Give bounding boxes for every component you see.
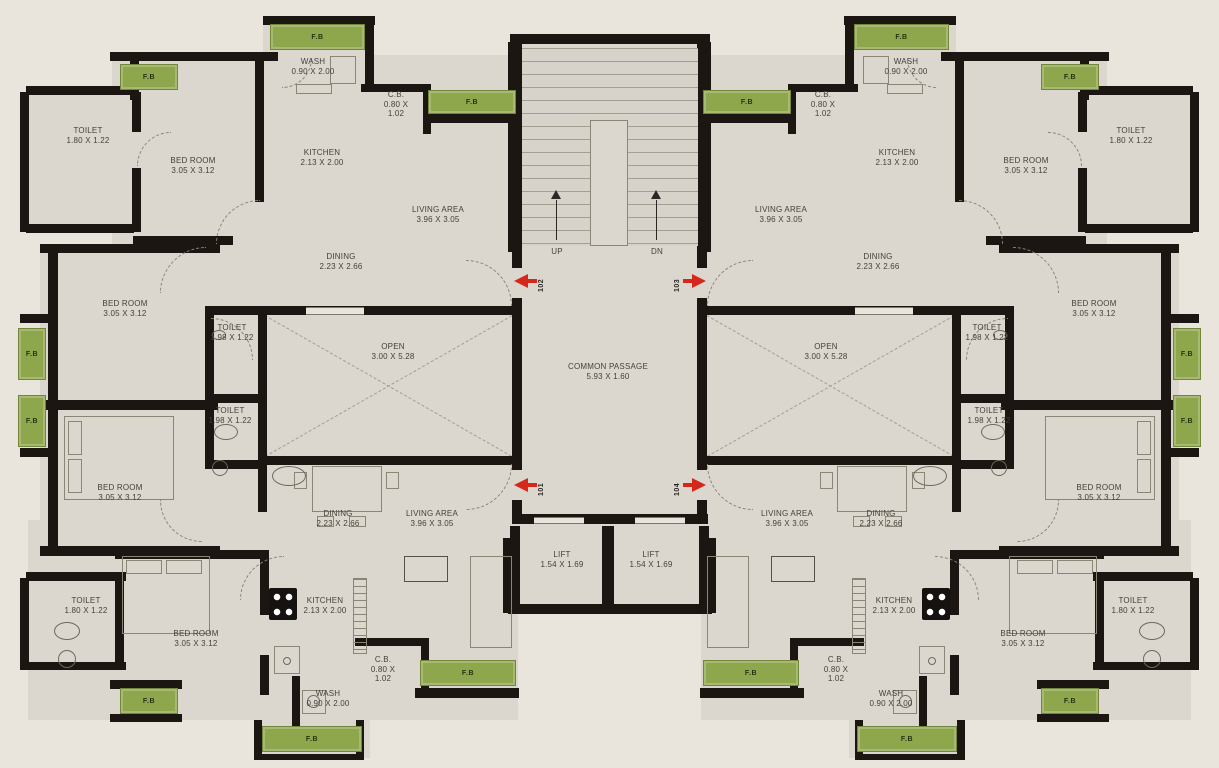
- room-label-line: KITCHEN: [300, 148, 343, 158]
- flower-bed-label: F.B: [462, 670, 474, 677]
- room-label-line: 1.80 X 1.22: [66, 136, 109, 146]
- room-label-line: 3.05 X 3.12: [1003, 166, 1048, 176]
- room-label-living-area-top-left-mirror: LIVING AREA3.96 X 3.05: [755, 205, 807, 224]
- room-label-line: WASH: [869, 689, 912, 699]
- wall: [26, 662, 126, 670]
- room-label-line: 2.13 X 2.00: [303, 606, 346, 616]
- room-label-line: BED ROOM: [1000, 629, 1045, 639]
- room-label-stair-dn: DN: [651, 247, 663, 257]
- wall: [957, 720, 965, 758]
- wall: [697, 250, 707, 268]
- room-label-wash-top-left: WASH0.90 X 2.00: [291, 57, 334, 76]
- room-label-line: 3.96 X 3.05: [412, 215, 464, 225]
- room-label-cb-top-left-mirror: C.B.0.80 X1.02: [811, 90, 835, 119]
- room-label-line: 2.23 X 2.66: [859, 519, 902, 529]
- flower-bed: F.B: [1041, 688, 1099, 714]
- room-label-line: C.B.: [811, 90, 835, 100]
- flower-bed: F.B: [270, 24, 365, 50]
- room-label-line: COMMON PASSAGE: [568, 362, 648, 372]
- wall: [1190, 578, 1199, 670]
- room-label-open-area-left: OPEN3.00 X 5.28: [371, 342, 414, 361]
- room-label-line: 1.54 X 1.69: [629, 560, 672, 570]
- furniture-outline: [1017, 560, 1053, 574]
- flat-entry-arrow-icon-102: [514, 274, 528, 288]
- flower-bed: F.B: [1041, 64, 1099, 90]
- flower-bed-label: F.B: [741, 99, 753, 106]
- wall: [1161, 404, 1171, 550]
- wall: [512, 250, 522, 268]
- room-label-line: 3.00 X 5.28: [804, 352, 847, 362]
- wall: [1001, 400, 1179, 410]
- flower-bed-label: F.B: [901, 736, 913, 743]
- wall: [1161, 244, 1171, 404]
- room-label-line: 1.80 X 1.22: [64, 606, 107, 616]
- flower-bed: F.B: [703, 90, 791, 114]
- flat-entry-arrow-stem: [683, 279, 693, 283]
- room-label-line: 3.96 X 3.05: [755, 215, 807, 225]
- flat-entry-arrow-stem: [527, 279, 537, 283]
- wall: [255, 52, 264, 202]
- fixture-circle: [283, 657, 291, 665]
- wall: [132, 168, 141, 232]
- wall: [254, 754, 364, 760]
- flower-bed-label: F.B: [26, 418, 38, 425]
- room-label-kitchen-bottom-left-mirror: KITCHEN2.13 X 2.00: [872, 596, 915, 615]
- wall: [954, 394, 1014, 403]
- furniture-outline: [312, 466, 382, 512]
- furniture-outline: [707, 556, 749, 648]
- room-label-line: 3.05 X 3.12: [102, 309, 147, 319]
- wall: [428, 114, 516, 123]
- room-label-wash-top-left-mirror: WASH0.90 X 2.00: [884, 57, 927, 76]
- room-label-line: C.B.: [384, 90, 408, 100]
- wall: [292, 676, 300, 726]
- fixture-circle: [991, 460, 1007, 476]
- wall: [20, 448, 48, 457]
- furniture-outline: [470, 556, 512, 648]
- wall: [205, 394, 265, 403]
- room-label-line: LIFT: [540, 550, 583, 560]
- room-label-line: C.B.: [371, 655, 395, 665]
- room-label-line: TOILET: [1109, 126, 1152, 136]
- flower-bed-label: F.B: [895, 34, 907, 41]
- wall: [258, 462, 267, 512]
- flower-bed: F.B: [18, 395, 46, 447]
- room-label-toilet-top-left-mirror: TOILET1.80 X 1.22: [1109, 126, 1152, 145]
- wall: [48, 244, 58, 404]
- wall: [26, 224, 134, 233]
- room-label-line: LIVING AREA: [755, 205, 807, 215]
- room-label-line: WASH: [884, 57, 927, 67]
- wall: [1171, 314, 1199, 323]
- stair-arrowhead-icon: [551, 190, 561, 199]
- room-label-common-passage: COMMON PASSAGE5.93 X 1.60: [568, 362, 648, 381]
- flower-bed: F.B: [1173, 395, 1201, 447]
- furniture-outline: [820, 472, 833, 489]
- wall: [1037, 714, 1109, 722]
- wall: [700, 688, 804, 698]
- flower-bed: F.B: [120, 688, 178, 714]
- room-label-line: DN: [651, 247, 663, 257]
- room-label-line: 3.05 X 3.12: [1076, 493, 1121, 503]
- flower-bed-label: F.B: [745, 670, 757, 677]
- stair-arrowhead-icon: [651, 190, 661, 199]
- fixture-oval: [981, 424, 1005, 440]
- furniture-outline: [296, 84, 332, 94]
- room-label-line: 1.02: [824, 674, 848, 684]
- flat-entry-arrow-stem: [683, 483, 693, 487]
- wall: [602, 526, 614, 606]
- furniture-outline: [1057, 560, 1093, 574]
- flat-number-102: 102: [538, 270, 548, 292]
- flower-bed: F.B: [854, 24, 949, 50]
- room-label-line: TOILET: [66, 126, 109, 136]
- room-label-line: BED ROOM: [97, 483, 142, 493]
- wall: [703, 114, 791, 123]
- wall: [1078, 92, 1087, 132]
- wall: [20, 314, 48, 323]
- room-label-line: KITCHEN: [875, 148, 918, 158]
- fixture-oval: [54, 622, 80, 640]
- room-label-line: 1.02: [811, 109, 835, 119]
- stair-arrow-line: [556, 200, 557, 240]
- room-label-line: 2.23 X 2.66: [319, 262, 362, 272]
- room-label-line: 3.05 X 3.12: [1071, 309, 1116, 319]
- room-label-line: BED ROOM: [173, 629, 218, 639]
- wall: [845, 16, 854, 92]
- fixture-oval: [1139, 622, 1165, 640]
- furniture-outline: [837, 466, 907, 512]
- flower-bed: F.B: [428, 90, 516, 114]
- room-label-line: DINING: [856, 252, 899, 262]
- wall: [955, 52, 964, 202]
- room-label-line: 0.80 X: [384, 100, 408, 110]
- room-label-lift-left: LIFT1.54 X 1.69: [540, 550, 583, 569]
- room-label-line: 1.98 X 1.22: [965, 333, 1008, 343]
- flower-bed-label: F.B: [143, 74, 155, 81]
- table-cross: [404, 556, 448, 582]
- fixture-oval: [214, 424, 238, 440]
- floor-plan: F.BF.BF.BF.BF.BF.BF.BF.BF.BF.BF.BF.BF.BF…: [0, 0, 1219, 768]
- room-label-bedroom-bottom-left-mirror: BED ROOM3.05 X 3.12: [1000, 629, 1045, 648]
- room-label-line: KITCHEN: [872, 596, 915, 606]
- room-label-living-area-top-left: LIVING AREA3.96 X 3.05: [412, 205, 464, 224]
- room-label-toilet-top-left: TOILET1.80 X 1.22: [66, 126, 109, 145]
- room-label-line: 1.54 X 1.69: [540, 560, 583, 570]
- room-label-line: 3.05 X 3.12: [97, 493, 142, 503]
- furniture-outline: [1137, 421, 1151, 455]
- wall: [1190, 92, 1199, 232]
- flower-bed: F.B: [857, 726, 957, 752]
- wall: [512, 298, 522, 470]
- room-label-line: BED ROOM: [1071, 299, 1116, 309]
- room-label-dining-top-left: DINING2.23 X 2.66: [319, 252, 362, 271]
- fixture-oval: [913, 466, 947, 486]
- room-label-line: 0.90 X 2.00: [291, 67, 334, 77]
- room-label-line: 2.23 X 2.66: [316, 519, 359, 529]
- room-label-kitchen-top-left-mirror: KITCHEN2.13 X 2.00: [875, 148, 918, 167]
- room-label-open-area-left-mirror: OPEN3.00 X 5.28: [804, 342, 847, 361]
- wall: [919, 676, 927, 726]
- flower-bed-label: F.B: [311, 34, 323, 41]
- flower-bed: F.B: [262, 726, 362, 752]
- room-label-line: 3.05 X 3.12: [1000, 639, 1045, 649]
- flower-bed-label: F.B: [1181, 418, 1193, 425]
- room-label-bedroom-top-left: BED ROOM3.05 X 3.12: [170, 156, 215, 175]
- room-label-living-area-bottom-left-mirror: LIVING AREA3.96 X 3.05: [761, 509, 813, 528]
- wall: [110, 714, 182, 722]
- room-label-line: 1.98 X 1.22: [967, 416, 1010, 426]
- flower-bed-label: F.B: [1064, 698, 1076, 705]
- room-label-line: 1.02: [371, 674, 395, 684]
- room-label-cb-top-left: C.B.0.80 X1.02: [384, 90, 408, 119]
- flower-bed-label: F.B: [1181, 351, 1193, 358]
- room-label-line: TOILET: [1111, 596, 1154, 606]
- room-label-line: LIVING AREA: [412, 205, 464, 215]
- wall: [48, 404, 58, 550]
- room-label-line: DINING: [316, 509, 359, 519]
- furniture-outline: [386, 472, 399, 489]
- room-label-line: DINING: [319, 252, 362, 262]
- room-label-line: UP: [551, 247, 563, 257]
- room-label-line: C.B.: [824, 655, 848, 665]
- wall: [1078, 168, 1087, 232]
- room-label-line: 5.93 X 1.60: [568, 372, 648, 382]
- room-label-line: TOILET: [210, 323, 253, 333]
- room-label-line: DINING: [859, 509, 902, 519]
- flat-entry-arrow-icon-103: [692, 274, 706, 288]
- room-label-line: BED ROOM: [102, 299, 147, 309]
- fixture-circle: [1143, 650, 1161, 668]
- wall: [952, 306, 961, 468]
- furniture-outline: [1137, 459, 1151, 493]
- duct-hatch: [353, 578, 367, 654]
- room-label-line: LIFT: [629, 550, 672, 560]
- flower-bed-label: F.B: [143, 698, 155, 705]
- window: [855, 307, 913, 315]
- flower-bed: F.B: [1173, 328, 1201, 380]
- flower-bed-label: F.B: [466, 99, 478, 106]
- flower-bed: F.B: [18, 328, 46, 380]
- room-label-line: LIVING AREA: [761, 509, 813, 519]
- floor-plate: [28, 88, 120, 233]
- wall: [20, 92, 29, 232]
- room-label-bedroom-top-left-mirror: BED ROOM3.05 X 3.12: [1003, 156, 1048, 175]
- room-label-line: 3.05 X 3.12: [173, 639, 218, 649]
- room-label-line: 1.98 X 1.22: [210, 333, 253, 343]
- room-label-line: 1.80 X 1.22: [1111, 606, 1154, 616]
- wall: [415, 688, 519, 698]
- wall: [258, 306, 267, 468]
- room-label-line: WASH: [306, 689, 349, 699]
- room-label-toilet-mid-upper-left-mirror: TOILET1.98 X 1.22: [965, 323, 1008, 342]
- wall: [132, 92, 141, 132]
- wall: [1171, 448, 1199, 457]
- fixture-oval: [272, 466, 306, 486]
- flower-bed-label: F.B: [1064, 74, 1076, 81]
- room-label-line: OPEN: [804, 342, 847, 352]
- window: [534, 517, 584, 524]
- furniture-outline: [887, 84, 923, 94]
- flat-number-101: 101: [538, 474, 548, 496]
- room-label-line: LIVING AREA: [406, 509, 458, 519]
- room-label-kitchen-top-left: KITCHEN2.13 X 2.00: [300, 148, 343, 167]
- room-label-line: OPEN: [371, 342, 414, 352]
- wall: [510, 34, 710, 44]
- room-label-bedroom-bottom-left: BED ROOM3.05 X 3.12: [173, 629, 218, 648]
- wall: [508, 42, 522, 252]
- fixture-circle: [58, 650, 76, 668]
- room-label-line: 1.02: [384, 109, 408, 119]
- flower-bed: F.B: [703, 660, 799, 686]
- wall: [950, 655, 959, 695]
- flower-bed: F.B: [120, 64, 178, 90]
- furniture-outline: [166, 560, 202, 574]
- room-label-wash-bottom-left-mirror: WASH0.90 X 2.00: [869, 689, 912, 708]
- room-label-line: 3.96 X 3.05: [406, 519, 458, 529]
- room-label-line: 0.80 X: [811, 100, 835, 110]
- room-label-line: BED ROOM: [1003, 156, 1048, 166]
- flower-bed-label: F.B: [26, 351, 38, 358]
- room-label-line: 3.00 X 5.28: [371, 352, 414, 362]
- window: [635, 517, 685, 524]
- furniture-outline: [126, 560, 162, 574]
- room-label-toilet-mid-lower-left: TOILET1.98 X 1.22: [208, 406, 251, 425]
- flat-entry-arrow-icon-101: [514, 478, 528, 492]
- room-label-lift-right: LIFT1.54 X 1.69: [629, 550, 672, 569]
- room-label-line: 3.96 X 3.05: [761, 519, 813, 529]
- floor-plate: [1099, 88, 1191, 233]
- room-label-line: BED ROOM: [170, 156, 215, 166]
- room-label-line: TOILET: [965, 323, 1008, 333]
- room-label-line: 1.98 X 1.22: [208, 416, 251, 426]
- room-label-bedroom-mid-lower-left: BED ROOM3.05 X 3.12: [97, 483, 142, 502]
- furniture-outline: [68, 421, 82, 455]
- stair-landing: [590, 120, 628, 246]
- room-label-wash-bottom-left: WASH0.90 X 2.00: [306, 689, 349, 708]
- fixture-circle: [928, 657, 936, 665]
- room-label-cb-bottom-left-mirror: C.B.0.80 X1.02: [824, 655, 848, 684]
- room-label-line: 1.80 X 1.22: [1109, 136, 1152, 146]
- room-label-line: TOILET: [967, 406, 1010, 416]
- room-label-line: TOILET: [64, 596, 107, 606]
- flat-number-103: 103: [674, 270, 684, 292]
- wall: [952, 462, 961, 512]
- wall: [1085, 224, 1193, 233]
- room-label-line: 2.13 X 2.00: [300, 158, 343, 168]
- room-label-line: 0.90 X 2.00: [306, 699, 349, 709]
- room-label-bedroom-mid-lower-left-mirror: BED ROOM3.05 X 3.12: [1076, 483, 1121, 502]
- wall: [20, 578, 29, 670]
- room-label-line: WASH: [291, 57, 334, 67]
- wall: [697, 298, 707, 470]
- wall: [697, 42, 711, 252]
- flat-entry-arrow-stem: [527, 483, 537, 487]
- room-label-line: 0.80 X: [371, 665, 395, 675]
- room-label-line: 0.90 X 2.00: [869, 699, 912, 709]
- room-label-line: 0.80 X: [824, 665, 848, 675]
- window: [306, 307, 364, 315]
- room-label-bedroom-mid-upper-left-mirror: BED ROOM3.05 X 3.12: [1071, 299, 1116, 318]
- flower-bed: F.B: [420, 660, 516, 686]
- fixture-circle: [212, 460, 228, 476]
- wall: [254, 720, 262, 758]
- furniture-outline: [68, 459, 82, 493]
- wall: [260, 655, 269, 695]
- room-label-line: 2.13 X 2.00: [872, 606, 915, 616]
- wall: [508, 604, 712, 614]
- room-label-dining-bottom-left: DINING2.23 X 2.66: [316, 509, 359, 528]
- room-label-line: 0.90 X 2.00: [884, 67, 927, 77]
- room-label-line: TOILET: [208, 406, 251, 416]
- room-label-dining-top-left-mirror: DINING2.23 X 2.66: [856, 252, 899, 271]
- duct-hatch: [852, 578, 866, 654]
- room-label-bedroom-mid-upper-left: BED ROOM3.05 X 3.12: [102, 299, 147, 318]
- wall: [1093, 572, 1193, 581]
- room-label-kitchen-bottom-left: KITCHEN2.13 X 2.00: [303, 596, 346, 615]
- room-label-toilet-bottom-left: TOILET1.80 X 1.22: [64, 596, 107, 615]
- wall: [26, 572, 126, 581]
- stair-arrow-line: [656, 200, 657, 240]
- room-label-toilet-bottom-left-mirror: TOILET1.80 X 1.22: [1111, 596, 1154, 615]
- room-label-toilet-mid-lower-left-mirror: TOILET1.98 X 1.22: [967, 406, 1010, 425]
- room-label-line: 3.05 X 3.12: [170, 166, 215, 176]
- flower-bed-label: F.B: [306, 736, 318, 743]
- room-label-line: 2.13 X 2.00: [875, 158, 918, 168]
- room-label-living-area-bottom-left: LIVING AREA3.96 X 3.05: [406, 509, 458, 528]
- flat-number-104: 104: [674, 474, 684, 496]
- room-label-line: BED ROOM: [1076, 483, 1121, 493]
- wall: [365, 16, 374, 92]
- room-label-stair-up: UP: [551, 247, 563, 257]
- room-label-dining-bottom-left-mirror: DINING2.23 X 2.66: [859, 509, 902, 528]
- wall: [855, 754, 965, 760]
- room-label-toilet-mid-upper-left: TOILET1.98 X 1.22: [210, 323, 253, 342]
- room-label-line: 2.23 X 2.66: [856, 262, 899, 272]
- wall: [1093, 662, 1193, 670]
- table-cross: [771, 556, 815, 582]
- wall: [40, 400, 218, 410]
- room-label-cb-bottom-left: C.B.0.80 X1.02: [371, 655, 395, 684]
- room-label-line: KITCHEN: [303, 596, 346, 606]
- flat-entry-arrow-icon-104: [692, 478, 706, 492]
